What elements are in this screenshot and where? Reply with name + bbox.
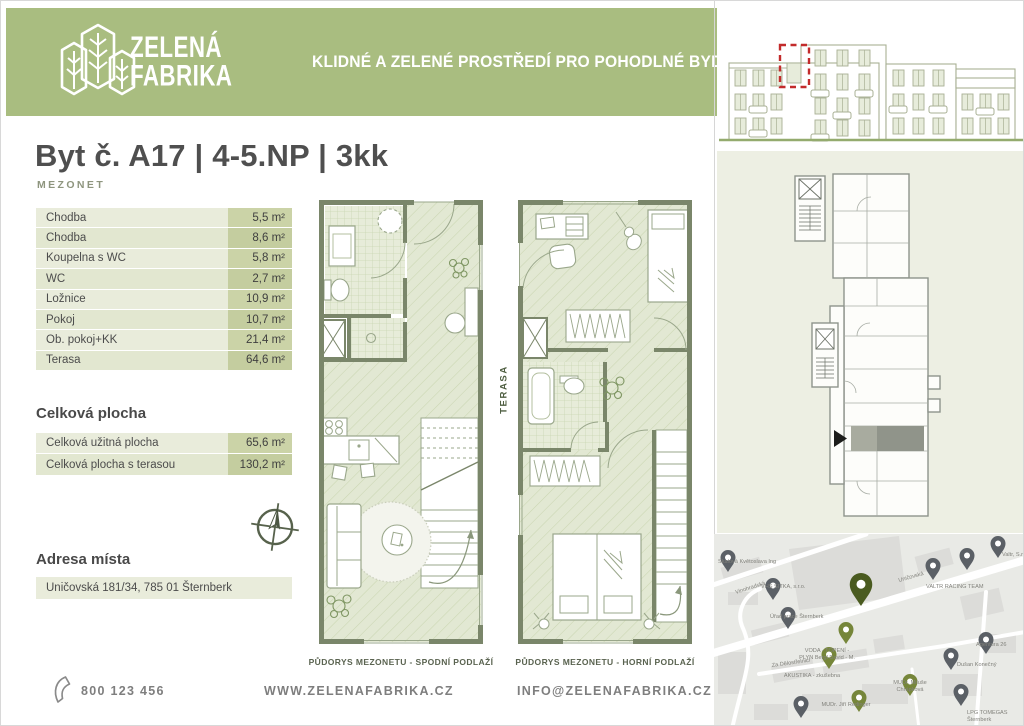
room-label: Pokoj	[36, 310, 228, 329]
table-row: Pokoj10,7 m²	[36, 310, 292, 329]
room-area: 5,5 m²	[228, 208, 292, 227]
map-label: Valtr, S.r.	[1002, 552, 1024, 558]
footer-phone: 800 123 456	[81, 684, 165, 698]
room-label: Ob. pokoj+KK	[36, 330, 228, 349]
table-row: Chodba8,6 m²	[36, 228, 292, 247]
room-label: WC	[36, 269, 228, 288]
table-row: Ob. pokoj+KK21,4 m²	[36, 330, 292, 349]
map-label: VODA - TOPENÍ -	[805, 647, 850, 654]
phone-icon	[51, 675, 75, 705]
room-label: Ložnice	[36, 290, 228, 309]
room-area-table: Chodba5,5 m² Chodba8,6 m² Koupelna s WC5…	[36, 208, 292, 371]
table-row: WC2,7 m²	[36, 269, 292, 288]
map-label: Dušan Konečný	[957, 662, 997, 668]
flyer-page: ZELENÁ FABRIKA KLIDNÉ A ZELENÉ PROSTŘEDÍ…	[0, 0, 1024, 726]
map-label: LPG TOMEGAS	[967, 710, 1008, 716]
address-value: Uničovská 181/34, 785 01 Šternberk	[36, 577, 292, 599]
table-row: Chodba5,5 m²	[36, 208, 292, 227]
north-compass-icon	[249, 501, 301, 553]
totals-heading: Celková plocha	[36, 405, 146, 422]
building-elevation-drawing	[719, 6, 1024, 148]
room-area: 64,6 m²	[228, 351, 292, 370]
page-title: Byt č. A17 | 4-5.NP | 3kk	[35, 138, 388, 174]
map-label: Skalová Květoslava Ing	[718, 559, 776, 565]
total-label: Celková plocha s terasou	[36, 454, 228, 474]
listing-subtitle: MEZONET	[37, 179, 105, 191]
room-label: Terasa	[36, 351, 228, 370]
map-label: Agentura 26	[976, 642, 1006, 648]
table-row: Celková plocha s terasou130,2 m²	[36, 454, 292, 474]
map-label: Úřad práce Šternberk	[770, 613, 824, 620]
table-row: Koupelna s WC5,8 m²	[36, 249, 292, 268]
map-label: Šternberk	[967, 716, 991, 723]
address-heading: Adresa místa	[36, 551, 130, 568]
total-area: 130,2 m²	[228, 454, 292, 474]
floorplan-upper-level	[508, 190, 702, 654]
footer-email: INFO@ZELENAFABRIKA.CZ	[517, 684, 712, 698]
footer-website: WWW.ZELENAFABRIKA.CZ	[264, 684, 454, 698]
totals-table: Celková užitná plocha65,6 m² Celková plo…	[36, 433, 292, 476]
header-tagline: KLIDNÉ A ZELENÉ PROSTŘEDÍ PRO POHODLNÉ B…	[312, 52, 759, 72]
terrace-label: TERASA	[499, 359, 510, 421]
total-area: 65,6 m²	[228, 433, 292, 453]
room-label: Chodba	[36, 228, 228, 247]
building-siteplan-drawing	[717, 151, 1024, 533]
table-row: Terasa64,6 m²	[36, 351, 292, 370]
lower-plan-caption: PŮDORYS MEZONETU - SPODNÍ PODLAŽÍ	[299, 657, 503, 667]
header-band: ZELENÁ FABRIKA KLIDNÉ A ZELENÉ PROSTŘEDÍ…	[6, 8, 717, 116]
total-label: Celková užitná plocha	[36, 433, 228, 453]
brand-name: ZELENÁ FABRIKA	[130, 33, 232, 90]
brand-name-line2: FABRIKA	[130, 61, 232, 89]
location-map: Skalová Květoslava Ing VHS SITKA, s.r.o.…	[714, 534, 1024, 726]
map-label: MUDr. Jiří Redinger	[821, 702, 870, 708]
map-label: Chrápková	[896, 687, 924, 693]
room-area: 8,6 m²	[228, 228, 292, 247]
table-row: Ložnice10,9 m²	[36, 290, 292, 309]
upper-plan-caption: PŮDORYS MEZONETU - HORNÍ PODLAŽÍ	[499, 657, 711, 667]
room-area: 10,9 m²	[228, 290, 292, 309]
map-label: VALTR RACING TEAM	[926, 584, 984, 590]
map-label: AKUSTIKA - zkušebna	[784, 673, 841, 679]
room-label: Koupelna s WC	[36, 249, 228, 268]
room-area: 21,4 m²	[228, 330, 292, 349]
brand-name-line1: ZELENÁ	[130, 33, 232, 61]
map-label: MUDr. Miluše	[893, 680, 927, 686]
room-label: Chodba	[36, 208, 228, 227]
floorplan-lower-level	[309, 190, 493, 654]
room-area: 2,7 m²	[228, 269, 292, 288]
table-row: Celková užitná plocha65,6 m²	[36, 433, 292, 453]
room-area: 5,8 m²	[228, 249, 292, 268]
room-area: 10,7 m²	[228, 310, 292, 329]
map-label: VHS SITKA, s.r.o.	[761, 584, 806, 590]
